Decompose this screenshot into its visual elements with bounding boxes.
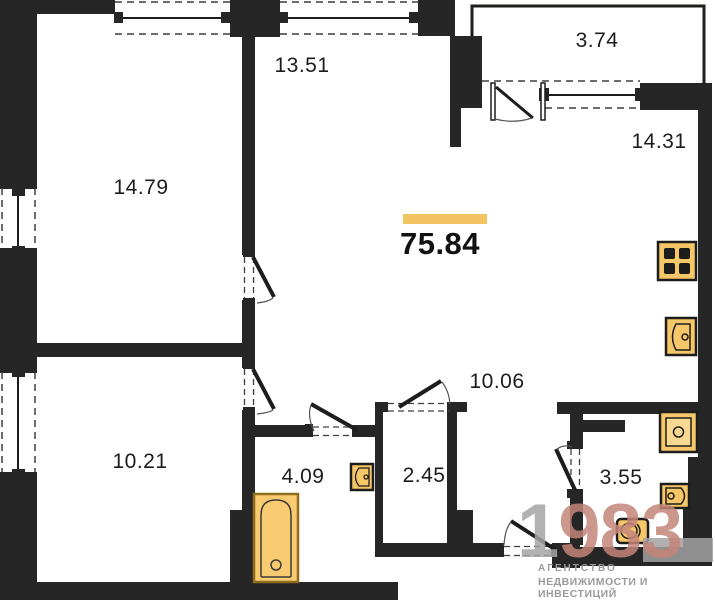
wall <box>698 83 712 457</box>
wall <box>570 414 583 444</box>
wall <box>242 300 255 368</box>
walls <box>0 0 712 600</box>
toilet-icon <box>617 519 648 543</box>
door-leaf <box>253 369 274 409</box>
wall <box>0 472 37 600</box>
door-leaf <box>556 449 575 490</box>
door-frame <box>497 543 504 557</box>
wall <box>375 402 388 412</box>
wall <box>0 248 37 373</box>
balcony-door-jamb <box>541 83 545 120</box>
window-anchors <box>12 12 645 479</box>
floor-plan: 14.79 13.51 3.74 14.31 10.06 10.21 4.09 … <box>0 0 715 600</box>
room-label-wc: 2.45 <box>403 464 446 488</box>
wall <box>450 108 461 147</box>
wall <box>375 402 383 545</box>
wall <box>577 547 712 566</box>
duct-wall <box>583 420 625 432</box>
wall <box>242 37 255 255</box>
room-label-kitchen-living: 14.31 <box>631 130 686 154</box>
total-area-accent-bar <box>403 214 487 224</box>
wall <box>230 0 280 37</box>
corner-sink-icon <box>351 464 373 490</box>
door-frame <box>243 249 255 257</box>
room-label-corridor: 10.06 <box>469 370 524 394</box>
wall <box>37 343 242 357</box>
floor-plan-drawing <box>0 0 715 600</box>
door-frame <box>567 489 583 498</box>
wall <box>375 543 503 557</box>
room-label-shower: 3.55 <box>600 466 643 490</box>
wall <box>688 457 712 488</box>
wall <box>447 402 457 512</box>
stove-icon <box>658 242 696 280</box>
door-frame <box>567 441 583 449</box>
room-label-13-51: 13.51 <box>274 54 329 78</box>
room-label-14-79: 14.79 <box>113 176 168 200</box>
door-frame <box>243 361 255 369</box>
balcony-door-jamb <box>491 83 495 120</box>
room-label-10-21: 10.21 <box>112 450 167 474</box>
wall <box>640 83 703 110</box>
door-frame <box>243 407 255 415</box>
wall <box>0 0 37 189</box>
kitchen-sink-icon <box>666 318 696 355</box>
washing-machine-icon <box>660 412 697 452</box>
wall <box>0 582 398 600</box>
bathtub-icon <box>254 494 298 582</box>
wall <box>255 425 307 437</box>
door-leaf <box>253 257 274 297</box>
hand-sink-icon <box>661 484 689 508</box>
wall <box>570 497 583 545</box>
door-leaf <box>311 404 357 430</box>
room-label-bathroom: 4.09 <box>282 465 325 489</box>
door-frame <box>243 298 255 306</box>
room-label-balcony: 3.74 <box>576 29 619 53</box>
wall <box>450 36 482 108</box>
door-leaf <box>496 87 533 118</box>
wall <box>230 510 255 582</box>
total-area-label: 75.84 <box>400 226 480 262</box>
door-leaf <box>511 521 556 550</box>
wall <box>418 0 455 36</box>
